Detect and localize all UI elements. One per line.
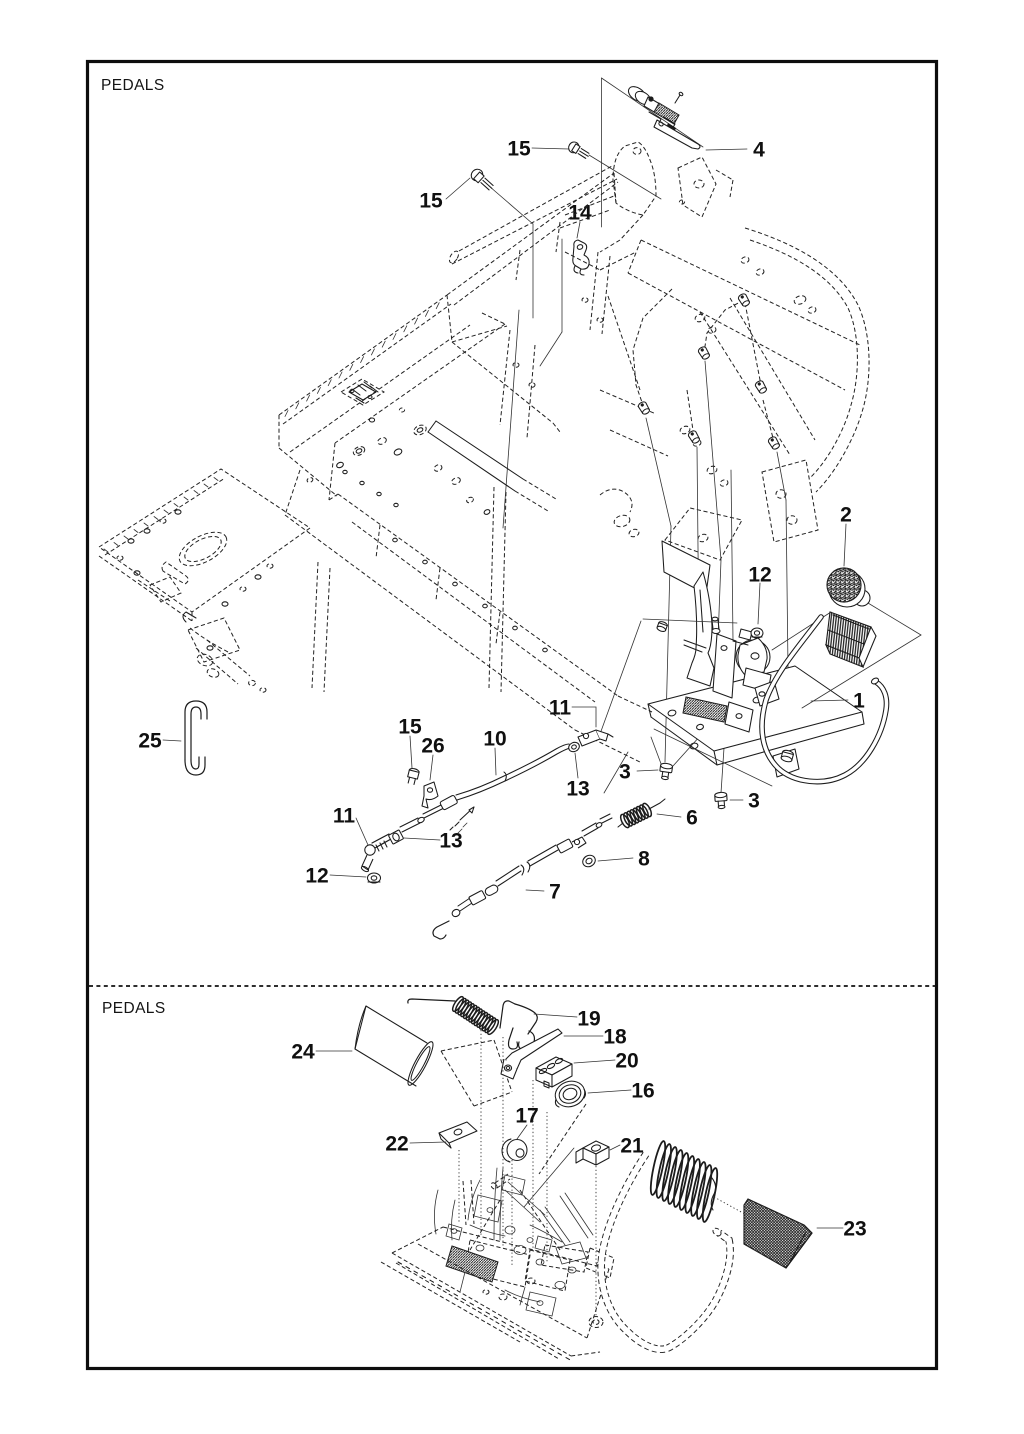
svg-text:20: 20 [615, 1050, 638, 1073]
svg-text:26: 26 [421, 735, 444, 758]
svg-text:4: 4 [753, 139, 765, 162]
svg-text:17: 17 [515, 1105, 538, 1128]
svg-text:22: 22 [385, 1133, 408, 1156]
svg-text:11: 11 [549, 697, 572, 720]
svg-text:15: 15 [398, 716, 422, 739]
svg-text:7: 7 [549, 881, 561, 904]
svg-text:25: 25 [138, 730, 162, 753]
svg-text:16: 16 [631, 1080, 654, 1103]
svg-text:24: 24 [291, 1041, 315, 1064]
svg-text:13: 13 [566, 778, 589, 801]
svg-text:23: 23 [843, 1218, 866, 1241]
svg-text:6: 6 [686, 807, 698, 830]
svg-text:18: 18 [603, 1026, 627, 1049]
svg-text:10: 10 [483, 728, 506, 751]
svg-text:2: 2 [840, 504, 852, 527]
svg-text:1: 1 [853, 690, 865, 713]
svg-text:3: 3 [619, 761, 631, 784]
svg-text:3: 3 [748, 790, 760, 813]
svg-text:PEDALS: PEDALS [101, 77, 165, 94]
svg-text:11: 11 [333, 805, 356, 828]
svg-text:15: 15 [419, 190, 443, 213]
svg-text:PEDALS: PEDALS [102, 1000, 166, 1017]
svg-text:19: 19 [577, 1008, 600, 1031]
svg-text:8: 8 [638, 848, 650, 871]
svg-text:12: 12 [305, 865, 328, 888]
svg-text:15: 15 [507, 138, 531, 161]
svg-text:13: 13 [439, 830, 462, 853]
svg-text:21: 21 [620, 1135, 644, 1158]
